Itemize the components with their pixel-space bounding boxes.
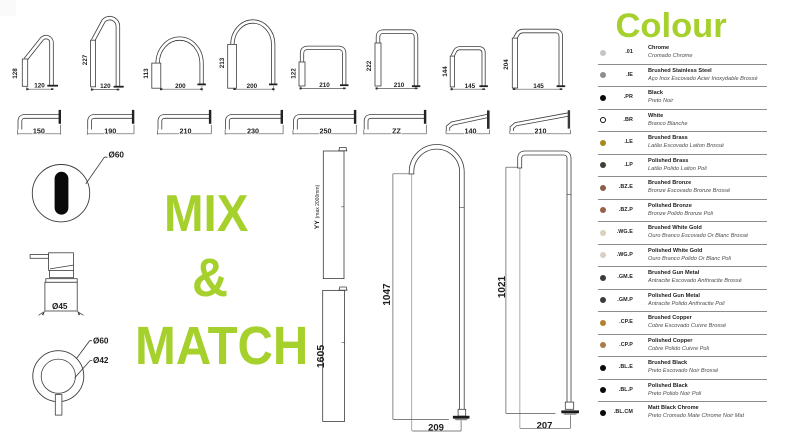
svg-text:1605: 1605 [315,345,327,369]
svg-text:Ø60: Ø60 [93,336,109,345]
svg-text:210: 210 [180,126,192,135]
svg-text:120: 120 [34,83,45,90]
svg-text:209: 209 [428,422,444,433]
svg-text:227: 227 [82,54,89,65]
svg-text:210: 210 [535,126,547,135]
svg-text:250: 250 [320,126,332,135]
svg-text:120: 120 [100,83,111,90]
svg-text:YY (max 2000mm): YY (max 2000mm) [314,184,321,229]
svg-text:Ø60: Ø60 [109,150,125,159]
svg-text:122: 122 [290,68,297,79]
svg-text:230: 230 [247,126,259,135]
svg-text:113: 113 [143,68,150,79]
svg-text:Ø42: Ø42 [93,356,109,365]
svg-text:ZZ: ZZ [392,126,401,135]
svg-text:190: 190 [104,126,116,135]
svg-text:144: 144 [442,66,449,77]
svg-text:1047: 1047 [382,283,393,306]
svg-text:200: 200 [175,83,186,90]
svg-text:Ø45: Ø45 [52,302,68,311]
svg-text:1021: 1021 [497,275,508,298]
svg-text:222: 222 [366,60,373,71]
svg-text:207: 207 [537,421,553,432]
svg-text:210: 210 [319,82,330,89]
svg-text:204: 204 [503,59,510,70]
svg-text:128: 128 [12,68,19,79]
svg-text:150: 150 [33,126,45,135]
svg-text:210: 210 [394,82,405,89]
svg-text:145: 145 [533,83,544,90]
svg-text:213: 213 [219,57,226,68]
svg-text:140: 140 [465,126,477,135]
svg-text:200: 200 [247,83,258,90]
svg-text:145: 145 [465,83,476,90]
